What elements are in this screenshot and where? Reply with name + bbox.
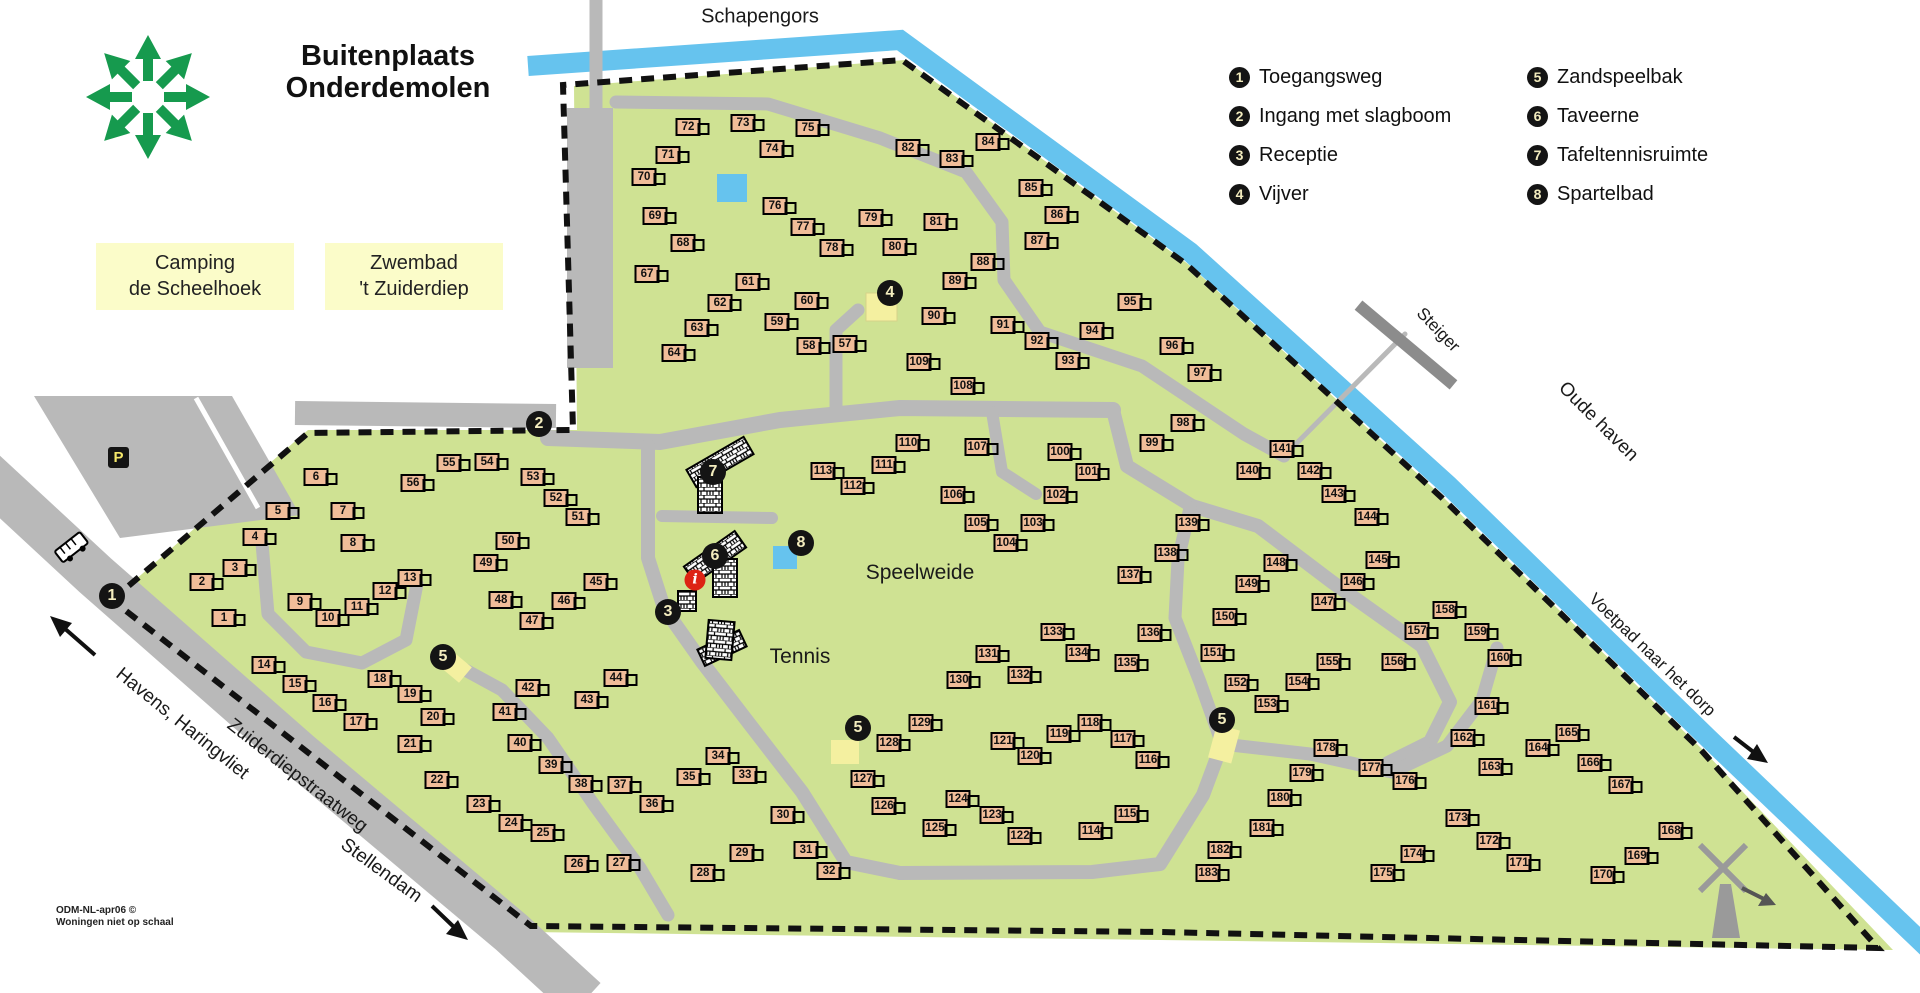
house-marker: 102 xyxy=(1044,486,1069,504)
house-marker: 34 xyxy=(706,747,731,765)
legend-label: Vijver xyxy=(1259,183,1309,206)
logo-arrows xyxy=(86,35,210,159)
house-marker: 130 xyxy=(947,671,972,689)
house-marker: 154 xyxy=(1286,673,1311,691)
house-marker: 23 xyxy=(467,795,492,813)
house-marker: 146 xyxy=(1341,573,1366,591)
house-marker: 9 xyxy=(288,593,313,611)
house-marker: 183 xyxy=(1196,864,1221,882)
legend-number: 1 xyxy=(1229,67,1250,88)
house-marker: 87 xyxy=(1025,232,1050,250)
legend-item-8: 8Spartelbad xyxy=(1527,183,1654,205)
house-marker: 80 xyxy=(883,238,908,256)
house-marker: 121 xyxy=(991,732,1016,750)
house-marker: 103 xyxy=(1021,514,1046,532)
house-marker: 16 xyxy=(313,694,338,712)
house-marker: 147 xyxy=(1312,593,1337,611)
legend-item-7: 7Tafeltennisruimte xyxy=(1527,144,1708,166)
house-marker: 88 xyxy=(971,253,996,271)
zwembad-line1: Zwembad xyxy=(325,250,503,276)
legend-label: Toegangsweg xyxy=(1259,66,1382,89)
house-marker: 50 xyxy=(496,532,521,550)
house-marker: 29 xyxy=(730,844,755,862)
house-marker: 110 xyxy=(896,434,921,452)
house-marker: 141 xyxy=(1270,440,1295,458)
house-marker: 105 xyxy=(965,514,990,532)
pond-top xyxy=(717,174,747,202)
camping-label-box: Camping de Scheelhoek xyxy=(96,243,294,310)
title-line2: Onderdemolen xyxy=(254,72,522,104)
house-marker: 51 xyxy=(566,508,591,526)
legend-number: 3 xyxy=(1229,145,1250,166)
house-marker: 104 xyxy=(994,534,1019,552)
house-marker: 82 xyxy=(896,139,921,157)
house-marker: 134 xyxy=(1066,644,1091,662)
house-marker: 31 xyxy=(794,841,819,859)
credits-line1: ODM-NL-apr06 © xyxy=(56,905,174,917)
house-marker: 49 xyxy=(474,554,499,572)
house-marker: 69 xyxy=(643,207,668,225)
house-marker: 111 xyxy=(872,456,897,474)
house-marker: 12 xyxy=(373,582,398,600)
house-marker: 128 xyxy=(877,734,902,752)
legend-label: Zandspeelbak xyxy=(1557,66,1683,89)
house-marker: 43 xyxy=(575,691,600,709)
house-marker: 132 xyxy=(1008,666,1033,684)
house-marker: 177 xyxy=(1359,759,1384,777)
house-marker: 90 xyxy=(922,307,947,325)
house-marker: 4 xyxy=(243,528,268,546)
house-marker: 93 xyxy=(1056,352,1081,370)
house-marker: 6 xyxy=(304,468,329,486)
house-marker: 47 xyxy=(520,612,545,630)
house-marker: 57 xyxy=(833,335,858,353)
house-marker: 62 xyxy=(708,294,733,312)
road-to-entrance xyxy=(295,413,556,416)
facility-marker-2: 2 xyxy=(526,411,552,437)
house-marker: 1 xyxy=(212,609,237,627)
house-marker: 45 xyxy=(584,573,609,591)
house-marker: 114 xyxy=(1079,822,1104,840)
house-marker: 24 xyxy=(499,814,524,832)
house-marker: 119 xyxy=(1047,725,1072,743)
house-marker: 86 xyxy=(1045,206,1070,224)
house-marker: 158 xyxy=(1433,601,1458,619)
house-marker: 74 xyxy=(760,140,785,158)
house-marker: 64 xyxy=(662,344,687,362)
house-marker: 137 xyxy=(1118,566,1143,584)
legend-number: 5 xyxy=(1527,67,1548,88)
facility-marker-4: 4 xyxy=(877,280,903,306)
house-marker: 143 xyxy=(1322,485,1347,503)
house-marker: 170 xyxy=(1591,866,1616,884)
house-marker: 122 xyxy=(1008,827,1033,845)
legend-number: 6 xyxy=(1527,106,1548,127)
house-marker: 41 xyxy=(493,703,518,721)
house-marker: 118 xyxy=(1078,714,1103,732)
info-icon: i xyxy=(685,570,706,591)
legend-label: Tafeltennisruimte xyxy=(1557,144,1708,167)
house-marker: 68 xyxy=(671,234,696,252)
park-map: Buitenplaats Onderdemolen Schapengors Ca… xyxy=(0,0,1920,993)
house-marker: 15 xyxy=(283,675,308,693)
legend-item-6: 6Taveerne xyxy=(1527,105,1639,127)
house-marker: 135 xyxy=(1115,654,1140,672)
house-marker: 63 xyxy=(685,319,710,337)
facility-marker-6: 6 xyxy=(702,543,728,569)
legend-number: 2 xyxy=(1229,106,1250,127)
house-marker: 117 xyxy=(1111,730,1136,748)
house-marker: 125 xyxy=(923,819,948,837)
legend-label: Spartelbad xyxy=(1557,183,1654,206)
house-marker: 179 xyxy=(1290,764,1315,782)
house-marker: 54 xyxy=(475,453,500,471)
house-marker: 174 xyxy=(1401,845,1426,863)
house-marker: 28 xyxy=(691,864,716,882)
house-marker: 25 xyxy=(531,824,556,842)
house-marker: 76 xyxy=(763,197,788,215)
house-marker: 168 xyxy=(1659,822,1684,840)
legend-number: 7 xyxy=(1527,145,1548,166)
house-marker: 19 xyxy=(398,685,423,703)
house-marker: 84 xyxy=(976,133,1001,151)
zandspeelbak-2 xyxy=(831,740,859,764)
house-marker: 89 xyxy=(943,272,968,290)
house-marker: 35 xyxy=(677,768,702,786)
house-marker: 142 xyxy=(1298,462,1323,480)
house-marker: 155 xyxy=(1317,653,1342,671)
house-marker: 79 xyxy=(859,209,884,227)
house-marker: 162 xyxy=(1451,729,1476,747)
house-marker: 39 xyxy=(539,756,564,774)
house-marker: 78 xyxy=(820,239,845,257)
credits-line2: Woningen niet op schaal xyxy=(56,917,174,929)
map-credits: ODM-NL-apr06 © Woningen niet op schaal xyxy=(56,905,174,929)
house-marker: 180 xyxy=(1268,789,1293,807)
house-marker: 108 xyxy=(951,377,976,395)
house-marker: 18 xyxy=(368,670,393,688)
house-marker: 46 xyxy=(552,592,577,610)
house-marker: 77 xyxy=(791,218,816,236)
house-marker: 176 xyxy=(1393,772,1418,790)
house-marker: 91 xyxy=(991,316,1016,334)
house-marker: 112 xyxy=(841,477,866,495)
house-marker: 5 xyxy=(266,502,291,520)
house-marker: 157 xyxy=(1405,622,1430,640)
house-marker: 100 xyxy=(1048,443,1073,461)
house-marker: 53 xyxy=(521,468,546,486)
house-marker: 163 xyxy=(1479,758,1504,776)
house-marker: 156 xyxy=(1382,653,1407,671)
house-marker: 107 xyxy=(965,438,990,456)
house-marker: 166 xyxy=(1578,754,1603,772)
house-marker: 97 xyxy=(1188,364,1213,382)
house-marker: 70 xyxy=(632,168,657,186)
house-marker: 171 xyxy=(1507,854,1532,872)
house-marker: 55 xyxy=(437,454,462,472)
house-marker: 136 xyxy=(1138,624,1163,642)
camping-line2: de Scheelhoek xyxy=(96,276,294,302)
house-marker: 13 xyxy=(398,569,423,587)
house-marker: 36 xyxy=(640,795,665,813)
facility-marker-8: 8 xyxy=(788,530,814,556)
page-title: Buitenplaats Onderdemolen xyxy=(254,40,522,104)
house-marker: 22 xyxy=(425,771,450,789)
house-marker: 152 xyxy=(1225,674,1250,692)
house-marker: 42 xyxy=(516,679,541,697)
house-marker: 52 xyxy=(544,489,569,507)
label-tennis: Tennis xyxy=(770,645,831,669)
house-marker: 33 xyxy=(733,766,758,784)
legend-label: Receptie xyxy=(1259,144,1338,167)
house-marker: 99 xyxy=(1140,434,1165,452)
house-marker: 85 xyxy=(1019,179,1044,197)
house-marker: 144 xyxy=(1355,508,1380,526)
house-marker: 95 xyxy=(1118,293,1143,311)
facility-marker-5: 5 xyxy=(845,715,871,741)
receptie-building xyxy=(678,591,696,611)
legend-label: Taveerne xyxy=(1557,105,1639,128)
house-marker: 20 xyxy=(421,708,446,726)
facility-marker-5: 5 xyxy=(1209,707,1235,733)
label-schapengors: Schapengors xyxy=(701,6,819,29)
house-marker: 131 xyxy=(976,645,1001,663)
house-marker: 27 xyxy=(607,854,632,872)
house-marker: 138 xyxy=(1155,544,1180,562)
zwembad-label-box: Zwembad 't Zuiderdiep xyxy=(325,243,503,310)
house-marker: 7 xyxy=(331,502,356,520)
house-marker: 30 xyxy=(771,806,796,824)
house-marker: 106 xyxy=(941,486,966,504)
house-marker: 21 xyxy=(398,735,423,753)
house-marker: 83 xyxy=(940,150,965,168)
house-marker: 161 xyxy=(1475,697,1500,715)
house-marker: 71 xyxy=(656,146,681,164)
house-marker: 109 xyxy=(907,353,932,371)
house-marker: 11 xyxy=(345,598,370,616)
house-marker: 169 xyxy=(1625,847,1650,865)
house-marker: 151 xyxy=(1201,644,1226,662)
house-marker: 14 xyxy=(252,656,277,674)
house-marker: 3 xyxy=(223,559,248,577)
house-marker: 113 xyxy=(811,462,836,480)
havens-arrow xyxy=(50,616,95,655)
house-marker: 145 xyxy=(1366,551,1391,569)
legend-item-5: 5Zandspeelbak xyxy=(1527,66,1683,88)
legend-number: 8 xyxy=(1527,184,1548,205)
house-marker: 153 xyxy=(1255,695,1280,713)
house-marker: 124 xyxy=(946,790,971,808)
legend-item-1: 1Toegangsweg xyxy=(1229,66,1382,88)
legend-item-4: 4Vijver xyxy=(1229,183,1309,205)
legend-item-2: 2Ingang met slagboom xyxy=(1229,105,1451,127)
house-marker: 17 xyxy=(344,713,369,731)
facility-marker-7: 7 xyxy=(700,459,726,485)
house-marker: 38 xyxy=(569,775,594,793)
house-marker: 139 xyxy=(1176,514,1201,532)
house-marker: 26 xyxy=(565,855,590,873)
house-marker: 73 xyxy=(731,114,756,132)
house-marker: 150 xyxy=(1213,608,1238,626)
house-marker: 148 xyxy=(1264,554,1289,572)
house-marker: 172 xyxy=(1477,832,1502,850)
house-marker: 159 xyxy=(1465,623,1490,641)
legend-item-3: 3Receptie xyxy=(1229,144,1338,166)
house-marker: 48 xyxy=(489,591,514,609)
house-marker: 120 xyxy=(1018,747,1043,765)
parking-sign: P xyxy=(108,447,129,468)
house-marker: 10 xyxy=(316,609,341,627)
house-marker: 72 xyxy=(676,118,701,136)
legend-number: 4 xyxy=(1229,184,1250,205)
house-marker: 75 xyxy=(796,119,821,137)
house-marker: 182 xyxy=(1208,841,1233,859)
house-marker: 175 xyxy=(1371,864,1396,882)
house-marker: 61 xyxy=(736,273,761,291)
house-marker: 116 xyxy=(1136,751,1161,769)
house-marker: 178 xyxy=(1314,739,1339,757)
house-marker: 37 xyxy=(608,776,633,794)
house-marker: 101 xyxy=(1076,463,1101,481)
house-marker: 32 xyxy=(817,862,842,880)
house-marker: 115 xyxy=(1115,805,1140,823)
facility-marker-1: 1 xyxy=(99,583,125,609)
house-marker: 127 xyxy=(851,770,876,788)
house-marker: 181 xyxy=(1250,819,1275,837)
zwembad-line2: 't Zuiderdiep xyxy=(325,276,503,302)
house-marker: 126 xyxy=(872,797,897,815)
house-marker: 129 xyxy=(909,714,934,732)
house-marker: 123 xyxy=(980,806,1005,824)
house-marker: 160 xyxy=(1488,649,1513,667)
label-speelweide: Speelweide xyxy=(866,561,975,585)
house-marker: 133 xyxy=(1041,623,1066,641)
house-marker: 98 xyxy=(1171,414,1196,432)
house-marker: 8 xyxy=(341,534,366,552)
legend-label: Ingang met slagboom xyxy=(1259,105,1451,128)
house-marker: 173 xyxy=(1446,809,1471,827)
house-marker: 58 xyxy=(797,337,822,355)
house-marker: 165 xyxy=(1556,724,1581,742)
facility-marker-5: 5 xyxy=(430,644,456,670)
house-marker: 56 xyxy=(401,474,426,492)
house-marker: 59 xyxy=(765,313,790,331)
house-marker: 149 xyxy=(1236,575,1261,593)
house-marker: 94 xyxy=(1080,322,1105,340)
house-marker: 67 xyxy=(635,265,660,283)
house-marker: 44 xyxy=(604,669,629,687)
house-marker: 92 xyxy=(1025,332,1050,350)
house-marker: 140 xyxy=(1237,462,1262,480)
house-marker: 40 xyxy=(508,734,533,752)
house-marker: 60 xyxy=(795,292,820,310)
house-marker: 96 xyxy=(1160,337,1185,355)
facility-marker-3: 3 xyxy=(655,599,681,625)
camping-line1: Camping xyxy=(96,250,294,276)
house-marker: 81 xyxy=(924,213,949,231)
house-marker: 164 xyxy=(1526,739,1551,757)
title-line1: Buitenplaats xyxy=(254,40,522,72)
house-marker: 2 xyxy=(190,573,215,591)
parking-lot xyxy=(34,396,300,538)
house-marker: 167 xyxy=(1609,776,1634,794)
